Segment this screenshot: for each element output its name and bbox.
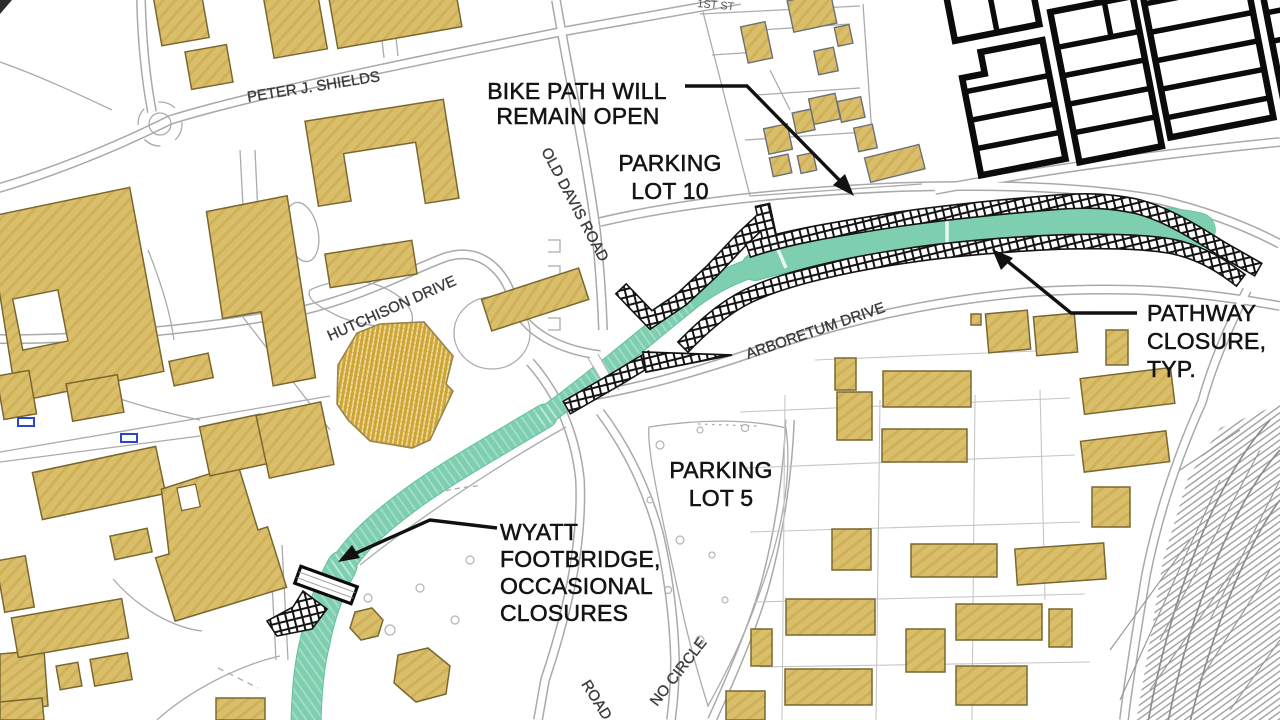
svg-text:TYP.: TYP. xyxy=(1147,356,1196,382)
svg-text:LOT 5: LOT 5 xyxy=(689,485,754,511)
svg-text:WYATT: WYATT xyxy=(500,519,578,545)
svg-text:REMAIN OPEN: REMAIN OPEN xyxy=(496,103,659,129)
svg-text:FOOTBRIDGE,: FOOTBRIDGE, xyxy=(500,546,661,572)
svg-text:BIKE PATH WILL: BIKE PATH WILL xyxy=(487,78,667,104)
svg-text:PATHWAY: PATHWAY xyxy=(1147,300,1256,326)
svg-text:CLOSURE,: CLOSURE, xyxy=(1147,328,1266,354)
svg-text:OCCASIONAL: OCCASIONAL xyxy=(500,573,653,599)
svg-text:PARKING: PARKING xyxy=(669,457,772,483)
svg-text:PARKING: PARKING xyxy=(618,150,721,176)
svg-text:CLOSURES: CLOSURES xyxy=(500,600,628,626)
svg-text:LOT 10: LOT 10 xyxy=(631,178,709,204)
